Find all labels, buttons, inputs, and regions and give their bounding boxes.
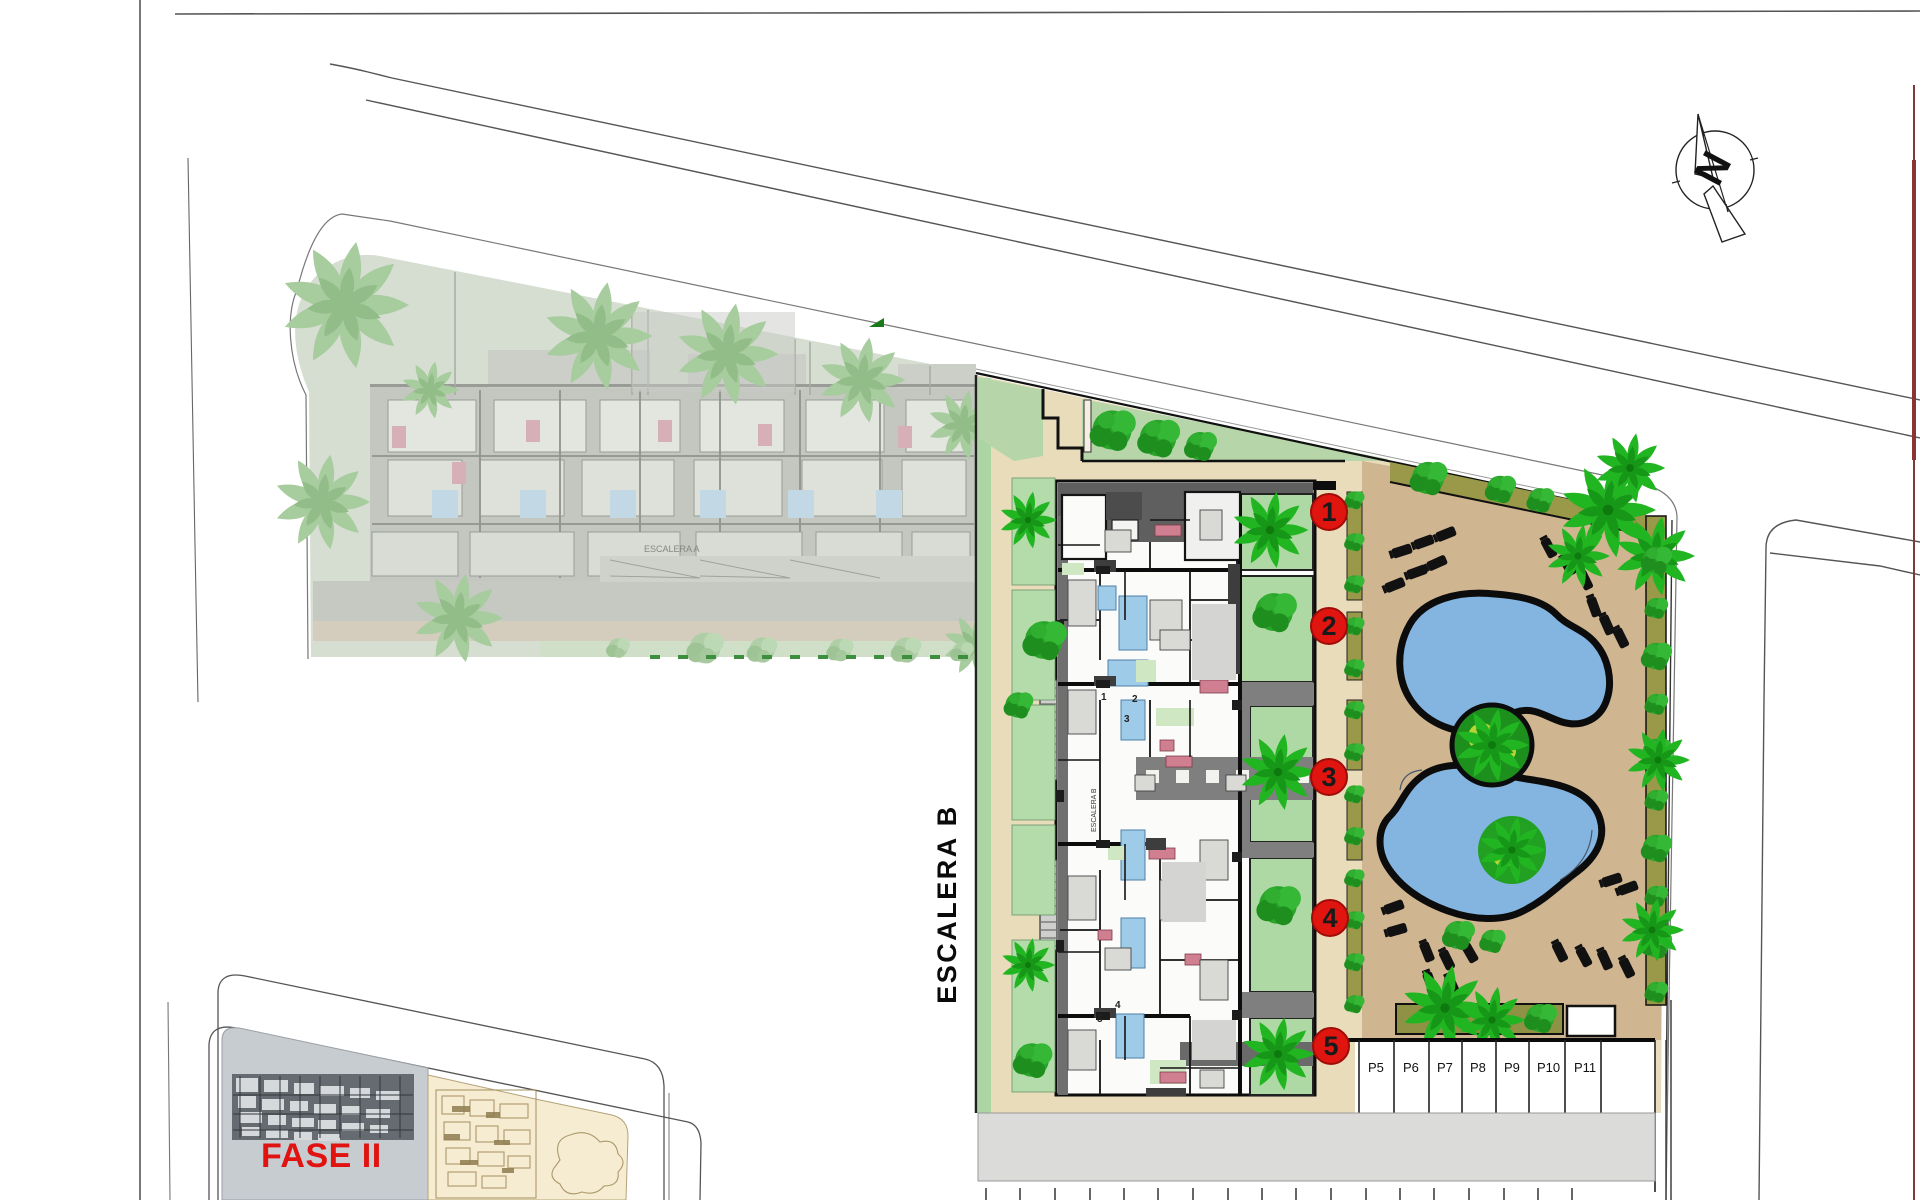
svg-text:3: 3 [1321, 762, 1336, 792]
svg-text:ESCALERA A: ESCALERA A [644, 544, 700, 554]
svg-text:P8: P8 [1470, 1060, 1486, 1075]
svg-text:P5: P5 [1368, 1060, 1384, 1075]
svg-text:3: 3 [1124, 714, 1130, 725]
svg-text:4: 4 [1322, 903, 1337, 933]
svg-text:ESCALERA B: ESCALERA B [1091, 788, 1098, 832]
svg-text:5: 5 [1097, 1014, 1103, 1025]
svg-text:4: 4 [1115, 1000, 1121, 1011]
svg-text:P11: P11 [1574, 1060, 1596, 1075]
svg-text:1: 1 [1321, 497, 1336, 527]
svg-text:FASE II: FASE II [261, 1137, 382, 1175]
svg-text:2: 2 [1132, 694, 1138, 705]
svg-text:P6: P6 [1403, 1060, 1419, 1075]
svg-text:P10: P10 [1537, 1060, 1560, 1075]
svg-text:ESCALERA B: ESCALERA B [932, 804, 962, 1004]
svg-text:5: 5 [1323, 1031, 1338, 1061]
svg-text:2: 2 [1321, 611, 1336, 641]
svg-text:1: 1 [1101, 692, 1107, 703]
svg-text:P7: P7 [1437, 1060, 1453, 1075]
svg-text:P9: P9 [1504, 1060, 1520, 1075]
